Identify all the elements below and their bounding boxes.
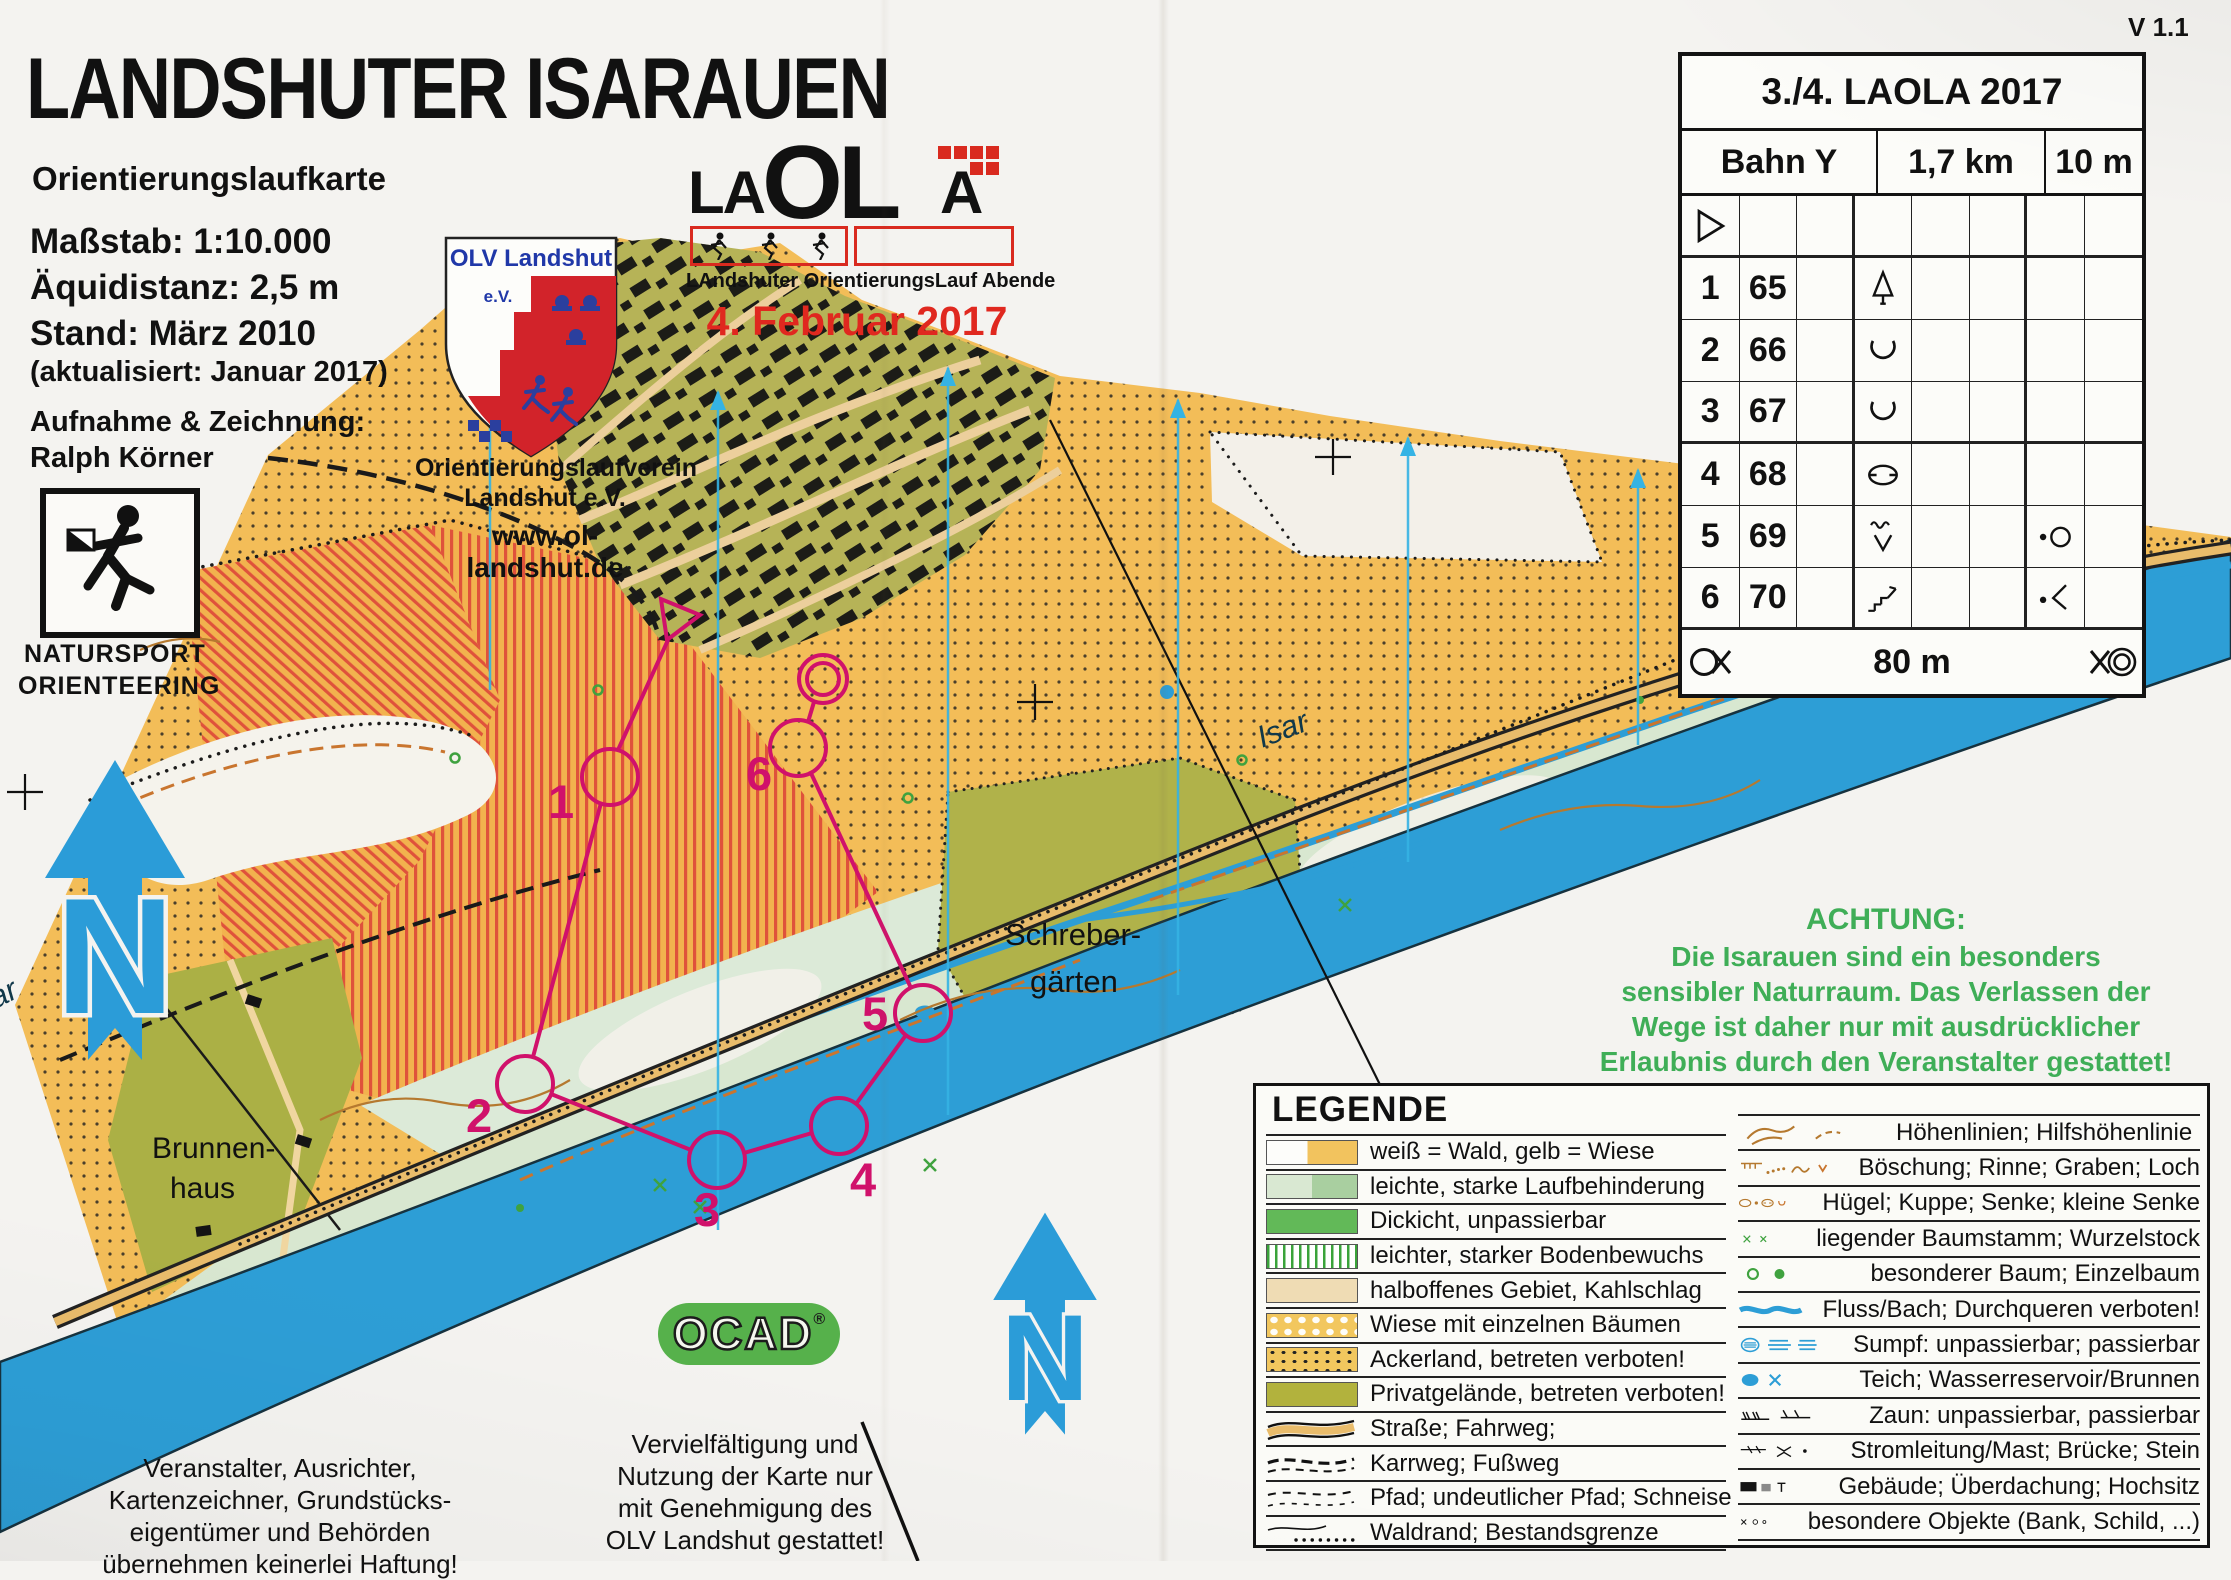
card-row-4: 4 68 <box>1682 444 2142 506</box>
credit-label: Aufnahme & Zeichnung: <box>30 406 365 439</box>
legend-box: LEGENDE weiß = Wald, gelb = Wiese leicht… <box>1253 1083 2210 1548</box>
swatch-track-icon <box>1266 1451 1358 1476</box>
card-row-1: 1 65 <box>1682 258 2142 320</box>
updated-line: (aktualisiert: Januar 2017) <box>30 356 388 389</box>
club-org-line2: Landshut e.V. <box>415 484 675 513</box>
event-date: 4. Februar 2017 <box>692 298 1022 345</box>
label-brunnenhaus-1: Brunnen- <box>152 1132 275 1165</box>
natursport-line1: NATURSPORT <box>24 640 206 669</box>
laola-runners-strip <box>690 226 848 266</box>
swatch-forest-edge-icon <box>1266 1520 1358 1545</box>
start-triangle-icon <box>1688 204 1732 248</box>
runner-icon <box>758 232 780 260</box>
marsh-reentrant-icon <box>1861 515 1905 559</box>
crest-title: OLV Landshut <box>450 245 612 272</box>
card-footer: 80 m <box>1682 630 2142 694</box>
depression-icon <box>1861 453 1905 497</box>
stand-line: Stand: März 2010 <box>30 314 316 354</box>
reentrant-icon <box>1861 329 1905 373</box>
label-schrebergarten-2: gärten <box>1030 964 1118 999</box>
ocad-wordmark: OCAD <box>673 1308 814 1360</box>
natursport-line2: ORIENTEERING <box>18 672 220 701</box>
knoll-depression-icon <box>1738 1188 1814 1218</box>
swatch-forest-meadow <box>1266 1140 1358 1165</box>
card-title: 3./4. LAOLA 2017 <box>1682 56 2142 131</box>
laola-subtitle: LAndshuter OrientierungsLauf Abende <box>686 270 1022 293</box>
scale-line: Maßstab: 1:10.000 <box>30 222 332 262</box>
earth-bank-icon <box>1738 1153 1850 1183</box>
card-row-6: 6 70 <box>1682 568 2142 630</box>
card-row-3: 3 67 <box>1682 382 2142 444</box>
course-length: 1,7 km <box>1878 131 2046 193</box>
copyright-disclaimer: Vervielfältigung und Nutzung der Karte n… <box>575 1428 915 1556</box>
warning-heading: ACHTUNG: <box>1562 903 2210 937</box>
crest-ev: e.V. <box>484 287 513 306</box>
version-label: V 1.1 <box>2128 12 2189 43</box>
card-row-start <box>1682 196 2142 258</box>
laola-logo: LA OL A <box>688 146 1020 264</box>
powerline-bridge-icon <box>1738 1436 1843 1466</box>
runner-icon <box>809 232 831 260</box>
final-leg-distance: 80 m <box>1740 630 2084 694</box>
swatch-farmland <box>1266 1347 1358 1372</box>
special-tree-icon <box>1738 1259 1862 1289</box>
swatch-ground-vegetation <box>1266 1244 1358 1269</box>
swatch-undergrowth <box>1266 1174 1358 1199</box>
ocad-logo: OCAD ® <box>658 1303 840 1365</box>
steps-bank-icon <box>1861 576 1905 620</box>
fence-icon <box>1738 1401 1861 1431</box>
olv-crest: OLV Landshut e.V. <box>438 224 624 464</box>
card-info-row: Bahn Y 1,7 km 10 m <box>1682 131 2142 196</box>
contours-icon <box>1738 1118 1888 1148</box>
legend-left-column: weiß = Wald, gelb = Wiese leichte, stark… <box>1266 1134 1726 1551</box>
label-brunnenhaus-2: haus <box>170 1172 235 1205</box>
svg-text:5: 5 <box>862 987 888 1040</box>
special-objects-icon <box>1738 1507 1800 1537</box>
legend-right-column: Höhenlinien; Hilfshöhenlinie Böschung; R… <box>1738 1114 2200 1541</box>
swatch-private <box>1266 1382 1358 1407</box>
scanned-orienteering-map-page: { "page": { "version": "V 1.1" }, "title… <box>0 0 2231 1561</box>
svg-text:4: 4 <box>850 1153 876 1206</box>
dot-bend-icon <box>2033 576 2077 620</box>
north-letter: N <box>55 864 174 1048</box>
equidistance-line: Äquidistanz: 2,5 m <box>30 268 339 308</box>
start-taped-route-icon <box>1686 639 1736 685</box>
card-row-2: 2 66 <box>1682 320 2142 382</box>
registered-mark: ® <box>813 1311 825 1329</box>
legend-title: LEGENDE <box>1272 1090 1448 1130</box>
page-title: LANDSHUTER ISARAUEN <box>26 40 889 139</box>
reentrant-icon <box>1861 390 1905 434</box>
club-website: www.ol-landshut.de <box>415 520 675 584</box>
marsh-icon <box>1738 1330 1845 1360</box>
warning-block: ACHTUNG: Die Isarauen sind ein besonders… <box>1562 903 2210 1079</box>
label-schrebergarten-1: Schreber- <box>1005 917 1141 952</box>
svg-text:N: N <box>1001 1289 1089 1426</box>
dot-circle-icon <box>2033 515 2077 559</box>
swatch-path-icon <box>1266 1486 1358 1511</box>
card-row-5: 5 69 <box>1682 506 2142 568</box>
club-org-line1: Orientierungslaufverein <box>415 454 675 483</box>
course-climb: 10 m <box>2046 131 2142 193</box>
swatch-meadow-trees <box>1266 1313 1358 1338</box>
laola-part-la: LA <box>688 158 764 227</box>
control-description-card: 3./4. LAOLA 2017 Bahn Y 1,7 km 10 m 1 65… <box>1678 52 2146 698</box>
svg-text:6: 6 <box>746 747 772 800</box>
distinctive-tree-icon <box>1861 267 1905 311</box>
page-subtitle: Orientierungslaufkarte <box>32 160 386 198</box>
svg-text:1: 1 <box>548 775 574 828</box>
natursport-logo-box <box>40 488 200 638</box>
north-arrow-bottom: N <box>993 1213 1097 1435</box>
fallen-tree-icon <box>1738 1224 1808 1254</box>
finish-double-circle-icon <box>2086 639 2140 685</box>
runner-icon <box>707 232 729 260</box>
svg-text:3: 3 <box>694 1183 720 1236</box>
building-canopy-icon <box>1738 1472 1830 1502</box>
river-icon <box>1738 1295 1814 1325</box>
credit-name: Ralph Körner <box>30 442 214 475</box>
swatch-thicket <box>1266 1209 1358 1234</box>
runner-icon <box>46 494 182 620</box>
svg-text:2: 2 <box>466 1089 492 1142</box>
swatch-semiopen <box>1266 1278 1358 1303</box>
course-name: Bahn Y <box>1682 131 1878 193</box>
pond-well-icon <box>1738 1365 1851 1395</box>
swatch-road-icon <box>1266 1417 1358 1442</box>
laola-red-frame <box>854 226 1014 266</box>
